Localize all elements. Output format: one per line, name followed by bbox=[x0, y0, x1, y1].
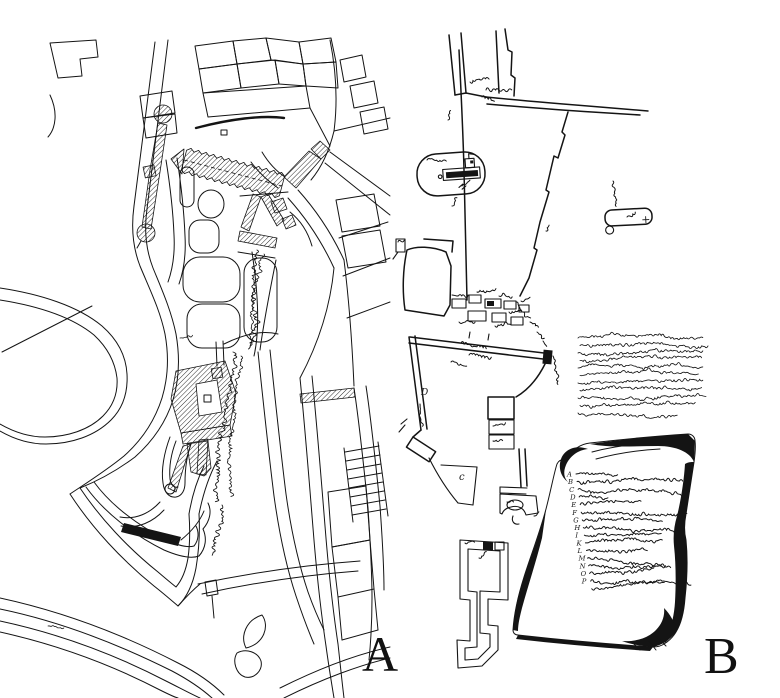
map-line bbox=[489, 420, 514, 434]
map-line bbox=[500, 487, 527, 488]
map-line bbox=[469, 332, 470, 338]
handwriting-mark bbox=[530, 320, 539, 329]
paragraph-line bbox=[578, 413, 677, 418]
legend-row: H bbox=[573, 524, 679, 532]
map-line bbox=[487, 301, 494, 306]
vegetation-line bbox=[180, 335, 193, 338]
map-line bbox=[0, 300, 117, 437]
map-line bbox=[177, 158, 185, 284]
legend-row: L bbox=[577, 547, 648, 555]
paragraph-line bbox=[580, 368, 698, 376]
two-panel-map-figure: + bbox=[0, 0, 780, 698]
map-line bbox=[244, 258, 277, 342]
map-line bbox=[487, 104, 640, 115]
map-line bbox=[374, 589, 378, 630]
scroll-cartouche: ABCDEFGHIKLMNOP bbox=[513, 434, 695, 651]
legend-entry-line bbox=[584, 532, 661, 538]
legend-row: E bbox=[570, 500, 641, 509]
wall-square-tower bbox=[143, 165, 156, 178]
legend-letter: P bbox=[581, 578, 587, 586]
map-line bbox=[330, 40, 336, 131]
handwriting-mark bbox=[470, 77, 489, 84]
map-line bbox=[203, 503, 210, 529]
map-line bbox=[233, 38, 271, 64]
round-bastion-south bbox=[137, 224, 155, 242]
church-apse bbox=[171, 149, 184, 174]
map-line bbox=[298, 190, 344, 260]
panel-label-b: B bbox=[704, 631, 739, 683]
handwriting-mark bbox=[427, 157, 446, 162]
paragraph-line bbox=[578, 332, 703, 339]
bastion-enclosure bbox=[416, 151, 487, 198]
handwriting-mark bbox=[478, 551, 488, 559]
map-line bbox=[438, 175, 442, 179]
handwriting-mark bbox=[542, 341, 547, 346]
church-apse bbox=[605, 226, 613, 234]
paragraph-line bbox=[578, 349, 703, 356]
map-line bbox=[189, 220, 219, 253]
map-line bbox=[202, 571, 358, 594]
map-line bbox=[0, 632, 178, 698]
map-line bbox=[507, 500, 523, 510]
map-line bbox=[461, 33, 466, 93]
legend-row: K bbox=[575, 537, 662, 547]
map-line bbox=[199, 64, 241, 93]
handwriting-mark bbox=[552, 356, 560, 385]
map-line bbox=[120, 502, 160, 518]
map-line bbox=[303, 62, 338, 88]
map-line bbox=[360, 107, 388, 134]
scroll-shadow-left bbox=[513, 510, 546, 631]
vegetation-line bbox=[211, 505, 227, 557]
map-line bbox=[237, 60, 279, 88]
legend-entry-line bbox=[587, 548, 648, 553]
legend-entry-line bbox=[577, 478, 683, 485]
legend-row: G bbox=[573, 516, 662, 524]
gate-building bbox=[284, 151, 321, 188]
bastion-hall bbox=[446, 170, 478, 178]
legend-entry-line bbox=[578, 488, 687, 496]
map-line bbox=[449, 35, 455, 95]
legend-entry-line bbox=[579, 495, 608, 500]
figure-canvas: + bbox=[0, 0, 780, 698]
map-line bbox=[452, 299, 466, 308]
legend-row: A bbox=[566, 471, 618, 479]
legend-entry-line bbox=[580, 500, 641, 505]
legend-row: C bbox=[569, 486, 687, 496]
map-line bbox=[519, 449, 521, 487]
deanery-west-wing bbox=[241, 194, 261, 231]
map-line bbox=[344, 260, 354, 386]
map-line bbox=[516, 364, 545, 397]
handwriting-mark bbox=[419, 404, 424, 427]
paragraph-line bbox=[580, 342, 708, 348]
handwriting-mark bbox=[493, 423, 506, 427]
long-rampart-building bbox=[457, 540, 508, 668]
handwritten-paragraph bbox=[578, 332, 708, 418]
paragraph-line bbox=[580, 386, 702, 391]
map-line bbox=[413, 430, 421, 437]
map-line bbox=[473, 467, 477, 505]
legend-entry-line bbox=[589, 564, 666, 570]
map-line bbox=[512, 516, 519, 524]
map-line bbox=[344, 448, 353, 522]
vegetation-scribbles bbox=[48, 250, 265, 629]
map-line bbox=[596, 449, 660, 459]
map-line bbox=[310, 108, 330, 146]
map-line bbox=[399, 425, 405, 432]
handwriting-mark bbox=[446, 110, 454, 120]
handwriting-mark bbox=[451, 361, 467, 367]
map-line bbox=[486, 97, 648, 111]
legend-entry-line bbox=[583, 526, 679, 533]
map-line bbox=[80, 209, 178, 488]
map-line bbox=[338, 597, 342, 640]
handwriting-mark bbox=[469, 353, 492, 359]
handwriting-mark bbox=[465, 541, 475, 544]
paragraph-line bbox=[580, 401, 695, 408]
map-line bbox=[166, 160, 174, 282]
map-line bbox=[525, 449, 527, 486]
map-line bbox=[350, 81, 378, 108]
wall-end-cap bbox=[542, 350, 552, 365]
map-line bbox=[187, 304, 240, 348]
castle-west-wing bbox=[168, 444, 191, 492]
map-line bbox=[347, 302, 390, 318]
deanery-south-range bbox=[238, 231, 277, 248]
legend-entry-line bbox=[590, 568, 654, 574]
map-line bbox=[366, 386, 384, 590]
panel-label-a: A bbox=[362, 629, 398, 679]
handwriting-marks bbox=[398, 77, 637, 559]
handwriting-mark bbox=[461, 180, 471, 186]
map-line bbox=[50, 40, 98, 78]
legend-entry-line bbox=[582, 517, 662, 523]
legend-entry-line bbox=[585, 537, 662, 544]
map-line bbox=[504, 301, 516, 309]
paragraph-line bbox=[578, 393, 706, 400]
castle-mid-wing bbox=[197, 439, 208, 475]
scroll-shadow-top bbox=[590, 434, 695, 462]
panel-a-cadastral-map bbox=[0, 38, 390, 698]
legend-row: N bbox=[579, 562, 666, 570]
map-line bbox=[468, 311, 486, 321]
map-line bbox=[288, 198, 334, 268]
panel-b-historic-sketch: + bbox=[393, 29, 708, 668]
hatched-monuments bbox=[137, 105, 355, 403]
map-line bbox=[505, 29, 515, 96]
map-line bbox=[48, 95, 55, 137]
paragraph-line bbox=[578, 362, 703, 369]
map-line bbox=[332, 540, 374, 597]
map-line bbox=[0, 621, 200, 698]
map-line bbox=[343, 258, 390, 276]
handwriting-mark bbox=[450, 197, 458, 207]
legend-entry-line bbox=[576, 472, 618, 477]
map-line bbox=[441, 465, 477, 467]
map-line bbox=[328, 486, 370, 547]
map-line bbox=[196, 117, 284, 128]
map-line bbox=[290, 212, 312, 246]
map-line bbox=[483, 542, 493, 550]
round-tower-north bbox=[154, 105, 172, 123]
walled-garden bbox=[403, 247, 451, 316]
legend-row: O bbox=[581, 568, 654, 578]
castle-ne-tower bbox=[211, 367, 223, 379]
map-line bbox=[235, 651, 261, 677]
legend-row: B bbox=[567, 478, 683, 487]
handwriting-mark bbox=[627, 212, 637, 219]
map-line bbox=[70, 494, 199, 606]
handwriting-mark bbox=[493, 439, 503, 442]
map-line bbox=[2, 306, 92, 352]
map-line bbox=[340, 55, 366, 82]
courtyard-block bbox=[488, 397, 514, 419]
map-line bbox=[275, 60, 306, 86]
map-line bbox=[492, 313, 506, 322]
map-line bbox=[520, 112, 568, 296]
paragraph-line bbox=[580, 355, 702, 363]
map-line bbox=[212, 596, 214, 618]
handwriting-mark bbox=[477, 288, 496, 294]
map-line bbox=[221, 130, 227, 135]
legend-entry-line bbox=[581, 511, 687, 517]
handwriting-mark bbox=[612, 181, 618, 207]
legend-row: F bbox=[571, 509, 687, 517]
detached-building bbox=[406, 437, 435, 462]
map-line bbox=[312, 376, 344, 698]
map-line bbox=[0, 598, 224, 695]
map-line bbox=[496, 31, 499, 93]
map-line bbox=[393, 252, 398, 259]
handwriting-mark bbox=[521, 297, 531, 302]
map-line bbox=[137, 241, 141, 248]
scroll-legend: ABCDEFGHIKLMNOP bbox=[566, 471, 691, 591]
legend-row: I bbox=[574, 532, 661, 540]
map-line bbox=[300, 268, 334, 378]
handwriting-mark bbox=[545, 225, 551, 232]
deanery-annex-east bbox=[282, 215, 296, 229]
map-line bbox=[244, 615, 266, 648]
map-line bbox=[415, 336, 427, 429]
handwriting-mark bbox=[452, 293, 468, 299]
map-line bbox=[489, 435, 514, 449]
map-letter-d: D bbox=[420, 388, 428, 398]
handwriting-mark bbox=[536, 331, 544, 339]
map-letter-c: c bbox=[459, 472, 465, 483]
map-line bbox=[469, 295, 481, 303]
map-line bbox=[70, 206, 167, 494]
map-line bbox=[198, 190, 224, 218]
handwriting-mark bbox=[534, 512, 540, 517]
scroll-curl-top-left bbox=[560, 447, 588, 482]
church-cross-mark: + bbox=[641, 213, 651, 226]
map-line bbox=[0, 288, 127, 444]
map-line bbox=[488, 334, 489, 340]
sketch-walls bbox=[393, 29, 648, 524]
map-line bbox=[458, 503, 473, 505]
map-line bbox=[181, 511, 204, 540]
map-line bbox=[511, 317, 523, 325]
keep-court-mark bbox=[204, 395, 211, 402]
church-symbol: + bbox=[605, 208, 653, 234]
map-line bbox=[401, 419, 407, 424]
bridge-hatched bbox=[300, 388, 355, 403]
map-line bbox=[470, 160, 473, 163]
paragraph-line bbox=[578, 378, 703, 384]
map-line bbox=[183, 257, 240, 302]
keyhole-structure bbox=[500, 494, 538, 515]
